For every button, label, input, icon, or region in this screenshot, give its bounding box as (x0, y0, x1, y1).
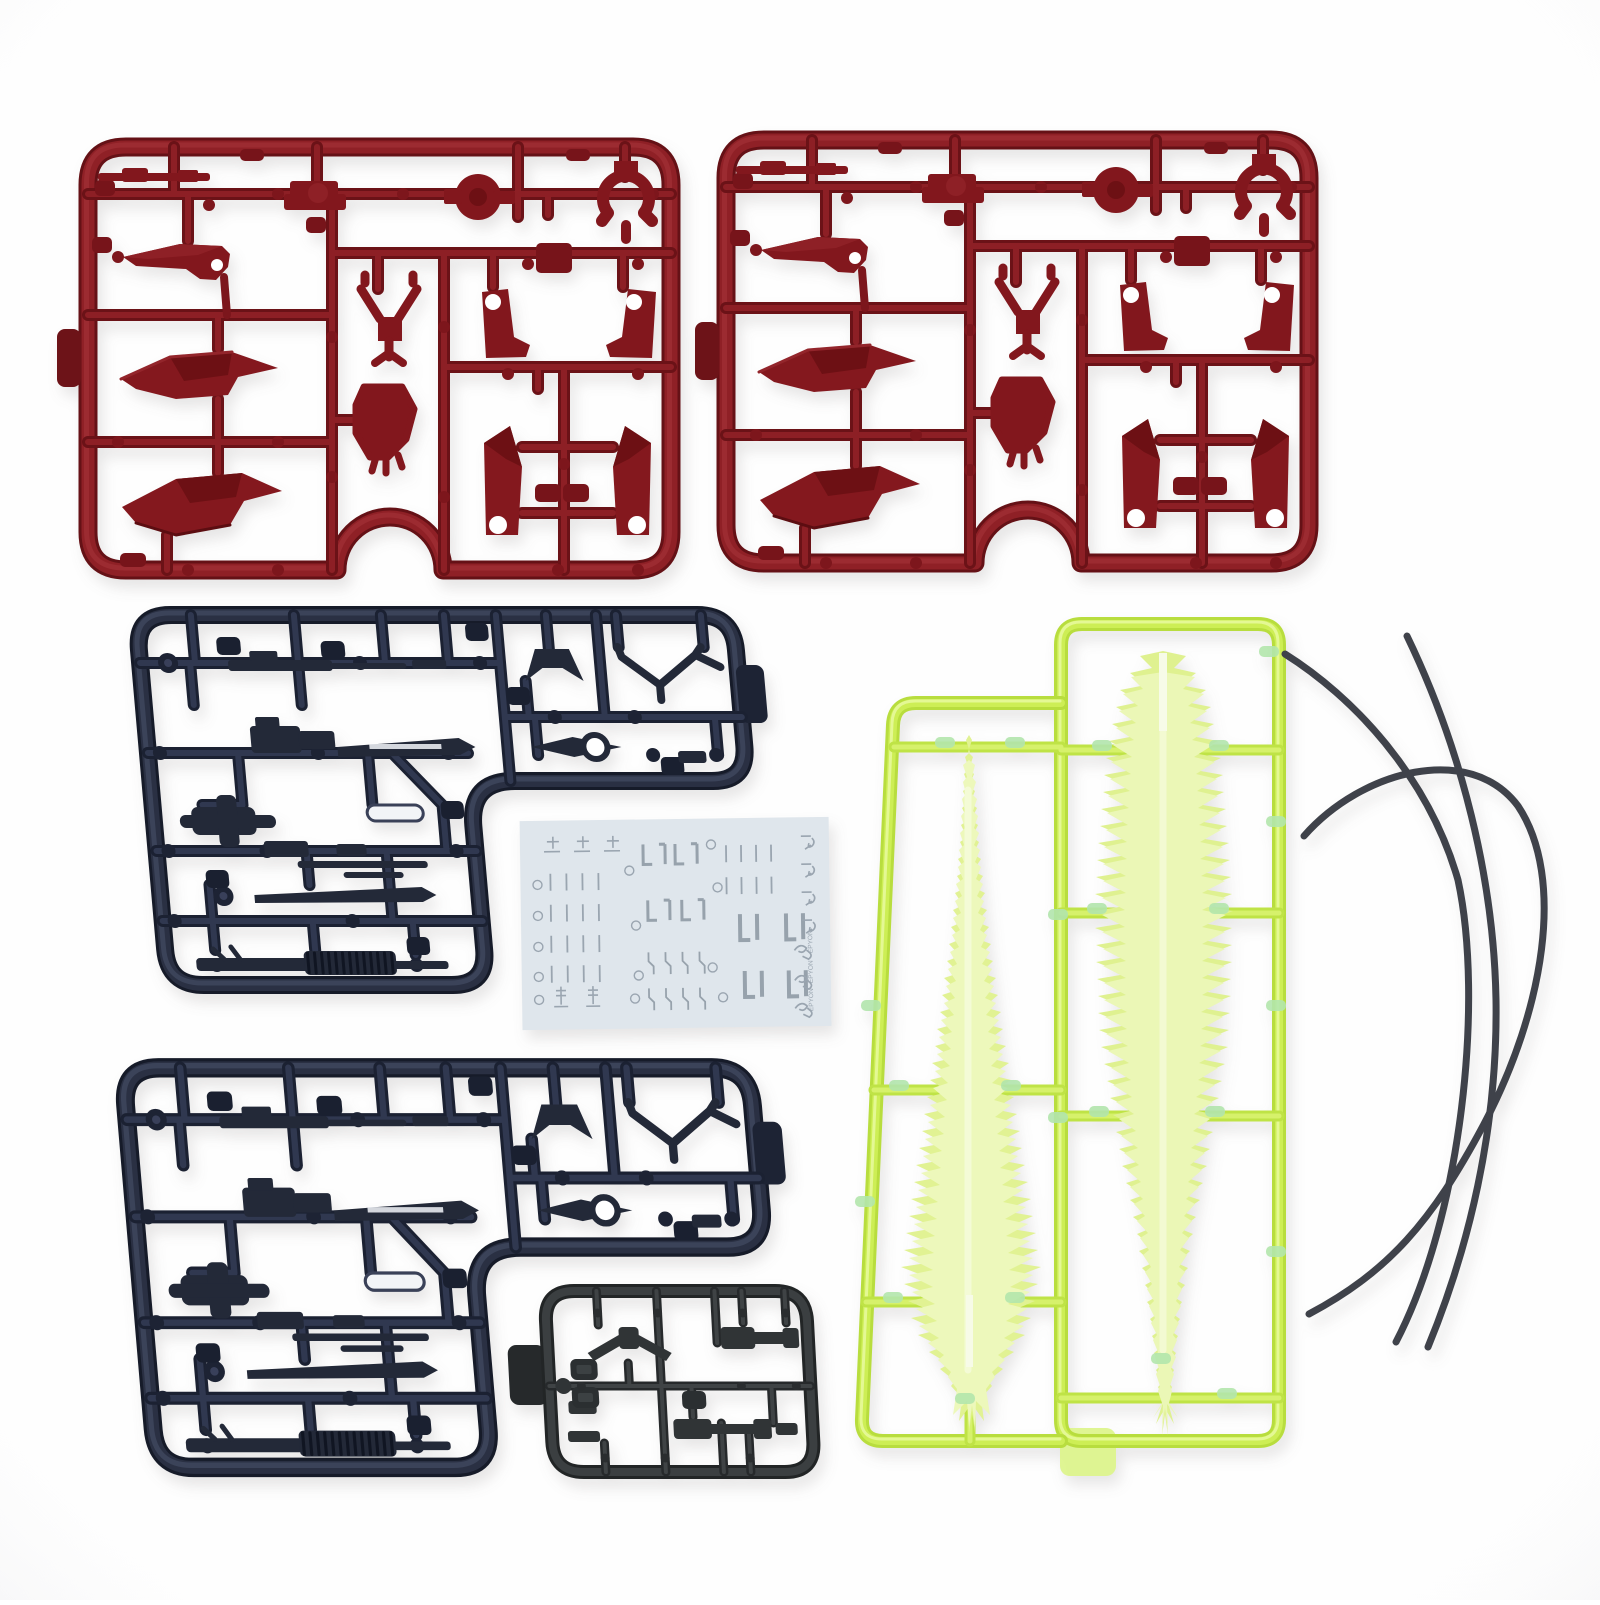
svg-text:EPYON: EPYON (807, 930, 814, 953)
svg-text:EPYON: EPYON (808, 960, 815, 983)
svg-text:EPYON: EPYON (808, 988, 815, 1011)
